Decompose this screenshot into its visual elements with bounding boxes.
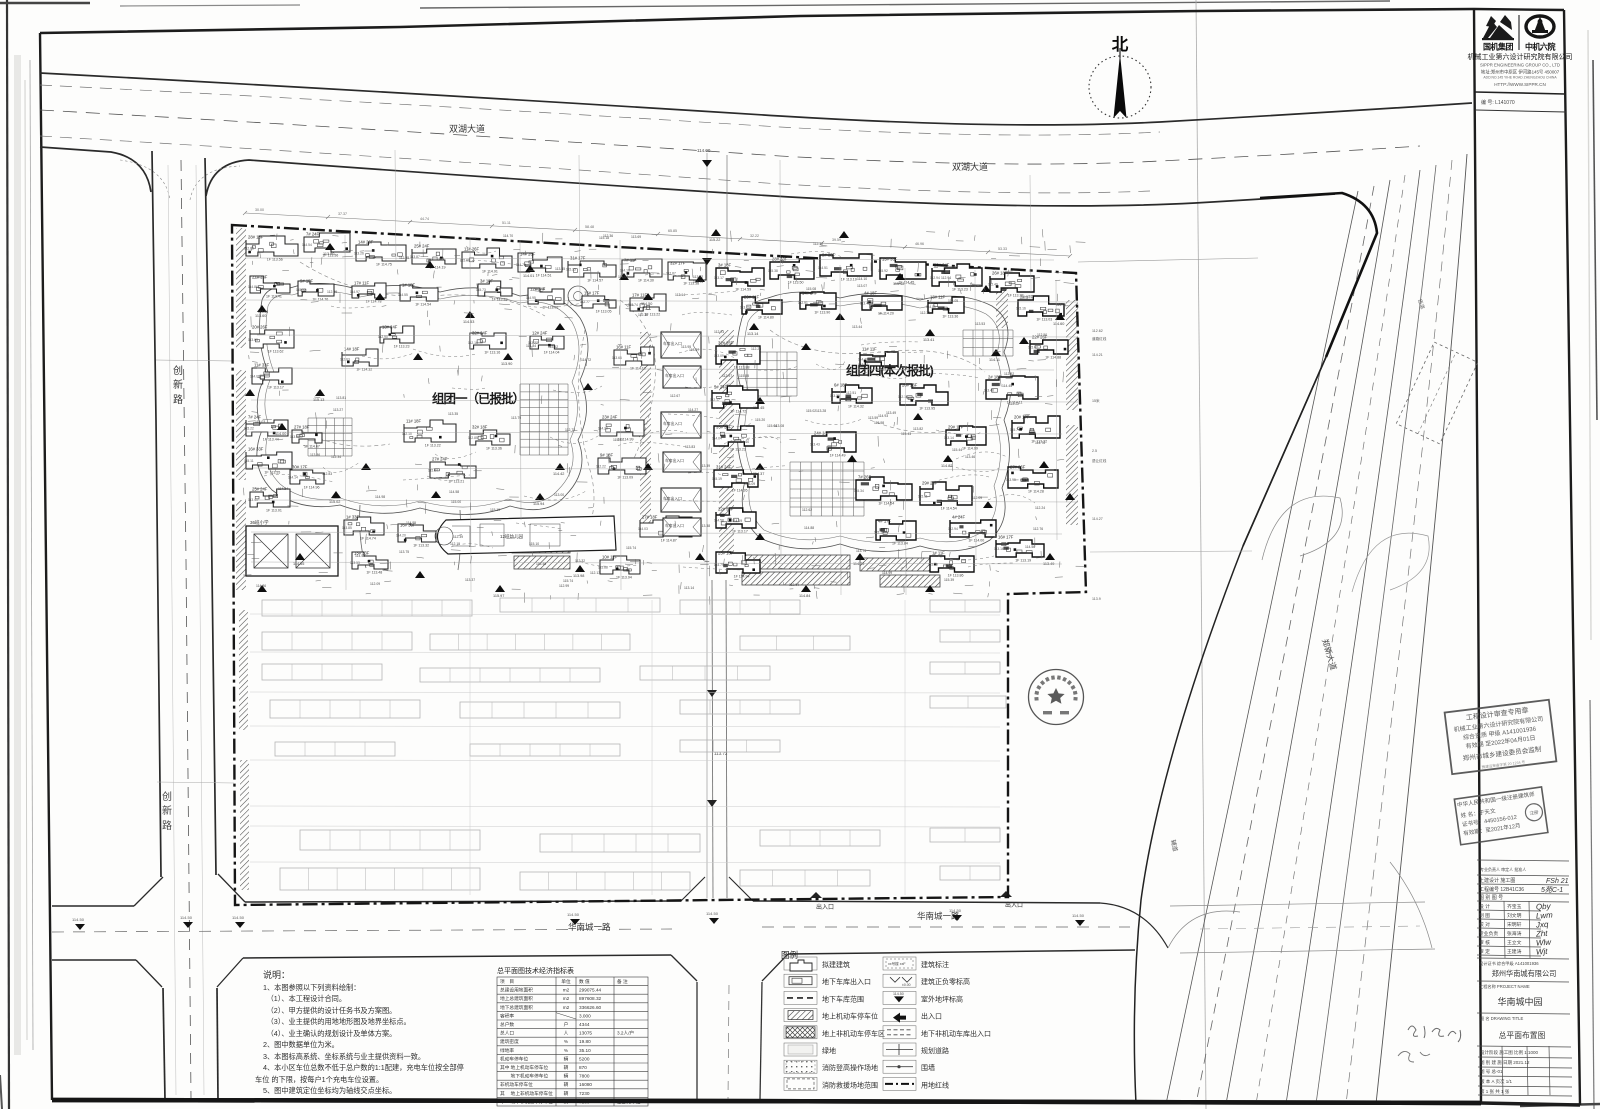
svg-text:114.84: 114.84: [526, 344, 536, 348]
svg-text:112.22: 112.22: [1009, 402, 1019, 406]
svg-text:114.19: 114.19: [732, 519, 742, 523]
svg-text:1F 113.50: 1F 113.50: [788, 281, 804, 285]
svg-text:113.14: 113.14: [684, 586, 694, 590]
svg-text:115.73: 115.73: [476, 288, 486, 292]
svg-text:其中 地上机动车停车位: 其中 地上机动车停车位: [500, 1064, 548, 1071]
svg-text:33# 33F: 33# 33F: [716, 425, 732, 430]
svg-text:制 图: 制 图: [1479, 912, 1490, 919]
svg-text:1F 114.26: 1F 114.26: [732, 489, 748, 493]
svg-text:1F 113.88: 1F 113.88: [734, 366, 750, 370]
svg-text:113.41: 113.41: [860, 301, 870, 305]
svg-text:图例: 图例: [781, 950, 798, 960]
svg-text:113.53: 113.53: [975, 322, 985, 326]
svg-text:112.86: 112.86: [327, 290, 337, 294]
svg-text:辆: 辆: [564, 1090, 569, 1097]
svg-text:112.39: 112.39: [453, 535, 463, 539]
svg-text:其 地上非机动车停车位: 其 地上非机动车停车位: [500, 1090, 553, 1097]
svg-text:备 注: 备 注: [617, 978, 628, 985]
svg-text:113.23: 113.23: [830, 394, 840, 398]
svg-text:辆: 辆: [564, 1055, 569, 1062]
svg-text:9# 18F: 9# 18F: [300, 279, 313, 284]
svg-text:1# 11F: 1# 11F: [932, 551, 945, 556]
svg-text:消防救援场地范围: 消防救援场地范围: [822, 1080, 878, 1089]
svg-text:齐宝玉: 齐宝玉: [1507, 903, 1522, 910]
svg-text:113.83: 113.83: [685, 445, 695, 449]
svg-text:112.94: 112.94: [930, 276, 940, 280]
svg-text:114.86: 114.86: [256, 584, 266, 588]
svg-text:1F 114.12: 1F 114.12: [630, 367, 646, 371]
svg-text:114.54: 114.54: [302, 243, 312, 247]
svg-text:1F 113.03: 1F 113.03: [1036, 318, 1052, 322]
svg-text:114.50: 114.50: [641, 302, 652, 306]
svg-text:897608.32: 897608.32: [579, 996, 602, 1001]
svg-text:113.82: 113.82: [913, 427, 923, 431]
svg-text:xx号楼 xxF: xx号楼 xxF: [888, 961, 906, 966]
svg-text:112.62: 112.62: [1092, 329, 1103, 333]
svg-text:51.11: 51.11: [502, 221, 511, 225]
svg-text:113.37: 113.37: [465, 578, 475, 582]
svg-text:114.99: 114.99: [882, 571, 892, 575]
svg-text:26# 26F: 26# 26F: [902, 383, 918, 388]
svg-text:3、本图标高系统、坐标系统与业主提供资料一致。: 3、本图标高系统、坐标系统与业主提供资料一致。: [263, 1052, 425, 1061]
svg-text:112.19: 112.19: [450, 542, 460, 546]
svg-text:围墙: 围墙: [921, 1063, 935, 1072]
svg-text:机械工业第六设计研究院有限公司: 机械工业第六设计研究院有限公司: [1468, 52, 1573, 61]
svg-text:113.07: 113.07: [857, 284, 867, 288]
svg-text:1# 18F: 1# 18F: [402, 283, 415, 288]
svg-text:114.60: 114.60: [1053, 322, 1064, 326]
svg-text:地上总建筑面积: 地上总建筑面积: [500, 995, 533, 1002]
svg-text:13# 24F: 13# 24F: [382, 325, 398, 330]
svg-text:114.50: 114.50: [1072, 913, 1085, 918]
svg-text:113.28: 113.28: [816, 409, 826, 413]
svg-text:115.02: 115.02: [329, 500, 340, 504]
svg-text:设计证书 综合甲级 A141001936: 设计证书 综合甲级 A141001936: [1479, 960, 1539, 967]
svg-text:112.49: 112.49: [988, 283, 998, 287]
svg-text:新: 新: [173, 378, 183, 391]
svg-text:114.58: 114.58: [714, 519, 724, 523]
svg-text:11# 26F: 11# 26F: [464, 247, 479, 252]
svg-text:114.37: 114.37: [753, 472, 764, 476]
svg-text:37.37: 37.37: [338, 212, 347, 216]
svg-text:1F 114.00: 1F 114.00: [968, 539, 984, 543]
svg-text:1F 114.74: 1F 114.74: [360, 537, 376, 541]
svg-text:113.16: 113.16: [994, 547, 1004, 551]
svg-text:114.55: 114.55: [398, 293, 408, 297]
svg-text:113.46: 113.46: [965, 455, 975, 459]
svg-text:19.80: 19.80: [579, 1039, 591, 1044]
svg-text:114.03: 114.03: [638, 527, 648, 531]
svg-text:1F 113.23: 1F 113.23: [394, 345, 410, 349]
svg-text:113.98: 113.98: [573, 574, 584, 578]
svg-text:16# 11F: 16# 11F: [616, 345, 631, 350]
svg-text:20# 24F: 20# 24F: [934, 263, 950, 268]
svg-text:29# 11F: 29# 11F: [744, 295, 759, 300]
svg-text:114.10: 114.10: [857, 277, 867, 281]
svg-text:专业负责人 审定人 批准人: 专业负责人 审定人 批准人: [1480, 866, 1526, 872]
svg-text:115.74: 115.74: [626, 546, 636, 550]
svg-text:112.24: 112.24: [1035, 506, 1045, 510]
svg-text:1# 33F: 1# 33F: [346, 515, 359, 520]
svg-text:车位 的下限，按每户1个充电车位设置。: 车位 的下限，按每户1个充电车位设置。: [255, 1075, 383, 1084]
svg-text:114.51: 114.51: [818, 266, 828, 270]
svg-text:113.44: 113.44: [852, 325, 862, 329]
svg-text:114.95: 114.95: [406, 521, 416, 525]
svg-text:15米: 15米: [1092, 398, 1100, 403]
svg-text:114.15: 114.15: [535, 287, 545, 291]
svg-text:3.000: 3.000: [579, 1013, 591, 1018]
svg-text:建筑标注: 建筑标注: [921, 960, 949, 969]
svg-text:113.68: 113.68: [258, 310, 268, 314]
svg-text:宋明轩: 宋明轩: [1507, 921, 1522, 928]
svg-text:114.50: 114.50: [949, 908, 962, 913]
svg-text:115.43: 115.43: [901, 432, 911, 436]
svg-text:编 号: L141070: 编 号: L141070: [1481, 99, 1515, 106]
svg-text:115.19: 115.19: [712, 477, 722, 481]
svg-text:1F 113.19: 1F 113.19: [1015, 559, 1031, 563]
svg-text:113.39: 113.39: [700, 464, 710, 468]
svg-text:辆: 辆: [564, 1064, 569, 1071]
svg-text:115.16: 115.16: [1016, 307, 1026, 311]
svg-text:27# 18F: 27# 18F: [294, 425, 310, 430]
svg-text:1F 114.72: 1F 114.72: [730, 410, 746, 414]
svg-text:设 计: 设 计: [1479, 903, 1490, 910]
svg-text:114.27: 114.27: [1092, 517, 1103, 521]
svg-text:规划道路: 规划道路: [921, 1046, 949, 1055]
svg-text:土建设计 施工图: 土建设计 施工图: [1479, 877, 1515, 884]
svg-text:113.29: 113.29: [740, 305, 750, 309]
svg-text:地下非机动车库出入口: 地下非机动车库出入口: [921, 1029, 991, 1038]
svg-text:115.22: 115.22: [709, 238, 720, 242]
svg-text:113.63: 113.63: [248, 338, 258, 342]
svg-text:112.73: 112.73: [565, 428, 575, 432]
svg-text:16# 33F: 16# 33F: [248, 447, 264, 452]
svg-text:112.73: 112.73: [714, 330, 724, 334]
svg-text:27# 24F: 27# 24F: [432, 457, 448, 462]
svg-text:114.20: 114.20: [598, 427, 608, 431]
svg-text:114.04: 114.04: [712, 437, 722, 441]
svg-text:113.87: 113.87: [689, 348, 699, 352]
svg-text:113.81: 113.81: [336, 396, 346, 400]
svg-text:1F 113.23: 1F 113.23: [730, 448, 746, 452]
svg-text:图 号 总-01: 图 号 总-01: [1480, 1068, 1503, 1075]
svg-text:地下机动车停车位: 地下机动车停车位: [500, 1073, 548, 1080]
svg-text:27# 18F: 27# 18F: [642, 515, 658, 520]
svg-text:31# 17F: 31# 17F: [570, 256, 586, 261]
svg-text:114.06: 114.06: [250, 375, 260, 379]
svg-text:1F 113.09: 1F 113.09: [617, 476, 633, 480]
svg-text:115.55: 115.55: [739, 374, 749, 378]
svg-text:16080: 16080: [579, 1082, 592, 1087]
svg-text:1F 113.05: 1F 113.05: [542, 306, 558, 310]
svg-text:113.35: 113.35: [448, 412, 458, 416]
svg-text:115.94: 115.94: [533, 502, 544, 506]
svg-text:北: 北: [1112, 35, 1129, 54]
svg-text:115.84: 115.84: [428, 469, 438, 473]
svg-text:39.59: 39.59: [832, 238, 841, 242]
svg-text:32.22: 32.22: [750, 234, 759, 238]
svg-text:1F 113.16: 1F 113.16: [484, 351, 500, 355]
svg-text:6# 18F: 6# 18F: [834, 383, 847, 388]
svg-text:1F 114.20: 1F 114.20: [878, 312, 894, 316]
svg-text:115.00: 115.00: [451, 500, 461, 504]
svg-text:113.43: 113.43: [810, 443, 820, 447]
svg-text:1F 113.21: 1F 113.21: [448, 480, 464, 484]
svg-text:1F 114.76: 1F 114.76: [312, 298, 328, 302]
svg-text:1F 113.36: 1F 113.36: [486, 447, 502, 451]
svg-text:国机集团: 国机集团: [1483, 42, 1513, 52]
svg-text:12# 24F: 12# 24F: [532, 331, 548, 336]
svg-text:1F 114.54: 1F 114.54: [415, 303, 431, 307]
svg-text:112.25: 112.25: [751, 347, 761, 351]
svg-text:注册: 注册: [1529, 809, 1539, 817]
svg-text:5200: 5200: [579, 1056, 590, 1061]
svg-text:7# 26F: 7# 26F: [858, 475, 871, 480]
svg-text:24# 18F: 24# 18F: [814, 431, 830, 436]
svg-text:1F 113.94: 1F 113.94: [616, 576, 632, 580]
svg-text:1F 114.54: 1F 114.54: [878, 502, 894, 506]
svg-text:（2）、甲方提供的设计任务书及方案图。: （2）、甲方提供的设计任务书及方案图。: [263, 1006, 396, 1015]
svg-text:室外地坪标高: 室外地坪标高: [921, 994, 963, 1003]
svg-text:7800: 7800: [579, 1074, 590, 1079]
svg-text:建筑密度: 建筑密度: [500, 1038, 519, 1045]
svg-text:绿地率: 绿地率: [500, 1047, 514, 1054]
svg-text:21# 18F: 21# 18F: [252, 275, 268, 280]
svg-text:3# 18F: 3# 18F: [480, 279, 493, 284]
svg-text:5# 24F: 5# 24F: [714, 385, 727, 390]
svg-text:ADD:NO.145 YIHE ROAD ZHENGZHOU: ADD:NO.145 YIHE ROAD ZHENGZHOU CHINA: [1483, 76, 1557, 80]
svg-text:项 目: 项 目: [500, 979, 514, 985]
svg-text:张海涛: 张海涛: [1507, 930, 1522, 937]
svg-text:115.11: 115.11: [244, 459, 254, 463]
svg-text:28# 18F: 28# 18F: [248, 235, 264, 240]
svg-text:114.76: 114.76: [516, 263, 526, 267]
svg-text:14# 24F: 14# 24F: [802, 291, 818, 296]
svg-text:1F 114.80: 1F 114.80: [758, 316, 774, 320]
svg-text:23# 24F: 23# 24F: [602, 415, 618, 420]
svg-text:7230: 7230: [579, 1091, 590, 1096]
svg-text:1F 114.59: 1F 114.59: [735, 288, 751, 292]
svg-text:114.94: 114.94: [1056, 303, 1066, 307]
svg-text:12班幼儿园: 12班幼儿园: [500, 533, 524, 540]
svg-text:1F 114.75: 1F 114.75: [376, 263, 392, 267]
svg-text:18# 11F: 18# 11F: [930, 295, 945, 300]
svg-text:16# 17F: 16# 17F: [998, 535, 1014, 540]
svg-text:31# 24F: 31# 24F: [716, 465, 732, 470]
svg-text:112.94: 112.94: [948, 527, 958, 531]
svg-text:户: 户: [564, 1021, 569, 1028]
svg-text:（4）、业主确认的规划设计及单体方案。: （4）、业主确认的规划设计及单体方案。: [263, 1029, 396, 1038]
svg-text:30# 17F: 30# 17F: [292, 465, 308, 470]
svg-text:1F 113.95: 1F 113.95: [919, 407, 935, 411]
svg-text:113.53: 113.53: [350, 561, 360, 565]
svg-text:114.56: 114.56: [1025, 545, 1035, 549]
svg-text:辅道: 辅道: [1169, 839, 1179, 852]
svg-text:辆: 辆: [564, 1073, 569, 1080]
svg-text:1F 114.88: 1F 114.88: [1045, 356, 1061, 360]
svg-text:114.16: 114.16: [620, 268, 630, 272]
svg-text:1F 113.55: 1F 113.55: [264, 471, 280, 475]
svg-text:115.11: 115.11: [918, 494, 928, 498]
svg-text:115.08: 115.08: [806, 287, 816, 291]
svg-text:1F 113.01: 1F 113.01: [266, 509, 282, 513]
svg-text:华南城中园: 华南城中园: [1497, 996, 1542, 1007]
svg-text:车库出入口: 车库出入口: [663, 341, 682, 346]
svg-text:113.59: 113.59: [868, 416, 878, 420]
svg-text:299075.44: 299075.44: [579, 988, 602, 993]
svg-text:114.55: 114.55: [293, 562, 304, 566]
svg-text:112.94: 112.94: [789, 583, 799, 587]
svg-text:设计阶段 施工图 比例 1:1000: 设计阶段 施工图 比例 1:1000: [1480, 1049, 1539, 1056]
svg-text:112.92: 112.92: [1004, 372, 1014, 376]
svg-text:1F 114.54: 1F 114.54: [941, 507, 957, 511]
svg-text:用地红线: 用地红线: [921, 1080, 949, 1089]
svg-text:王立文: 王立文: [1507, 939, 1522, 946]
svg-text:115.18: 115.18: [599, 236, 609, 240]
svg-text:115.02: 115.02: [806, 409, 816, 413]
svg-text:114.21: 114.21: [1092, 353, 1103, 357]
svg-text:114.72: 114.72: [581, 358, 591, 362]
svg-text:2# 18F: 2# 18F: [988, 375, 1001, 380]
svg-text:1F 113.84: 1F 113.84: [892, 542, 908, 546]
svg-text:1F 113.17: 1F 113.17: [268, 386, 284, 390]
svg-text:车库出入口: 车库出入口: [665, 373, 684, 378]
svg-text:115.92: 115.92: [613, 438, 623, 442]
svg-text:中机六院: 中机六院: [1525, 42, 1555, 52]
svg-text:28# 33F: 28# 33F: [772, 257, 788, 262]
svg-text:1F 114.32: 1F 114.32: [848, 405, 864, 409]
svg-text:总平面图技术经济指标表: 总平面图技术经济指标表: [497, 966, 574, 975]
svg-text:32# 18F: 32# 18F: [472, 425, 488, 430]
svg-text:114.60: 114.60: [739, 440, 749, 444]
svg-text:郑州华南城有限公司: 郑州华南城有限公司: [1492, 969, 1557, 978]
svg-text:HTTP://WWW.SIPPR.CN: HTTP://WWW.SIPPR.CN: [1494, 82, 1546, 87]
svg-text:王建涛: 王建涛: [1507, 948, 1522, 955]
svg-text:112.99: 112.99: [559, 584, 569, 588]
svg-text:115.02: 115.02: [1028, 345, 1038, 349]
svg-text:拟建建筑: 拟建建筑: [822, 960, 850, 969]
svg-text:4# 18F: 4# 18F: [864, 291, 877, 296]
svg-text:114.76: 114.76: [1035, 441, 1045, 445]
svg-text:车库出入口: 车库出入口: [665, 458, 684, 463]
svg-text:115.79: 115.79: [693, 280, 703, 284]
svg-text:114.97: 114.97: [350, 290, 360, 294]
svg-text:113.27: 113.27: [333, 408, 343, 412]
svg-text:112.22: 112.22: [596, 465, 606, 469]
svg-text:创: 创: [162, 790, 172, 803]
svg-text:辆: 辆: [564, 1081, 569, 1088]
svg-text:1F 114.57: 1F 114.57: [587, 279, 603, 283]
svg-text:113.60: 113.60: [255, 314, 266, 318]
svg-text:112.32: 112.32: [920, 311, 930, 315]
svg-text:14# 26F: 14# 26F: [358, 240, 374, 245]
svg-text:非机动车停车位: 非机动车停车位: [500, 1081, 533, 1088]
svg-text:113.41: 113.41: [248, 498, 258, 502]
svg-text:115.45: 115.45: [753, 406, 764, 410]
svg-text:115.39: 115.39: [944, 578, 954, 582]
svg-text:图 名 DRAWING TITLE: 图 名 DRAWING TITLE: [1480, 1015, 1523, 1022]
svg-text:115.23: 115.23: [566, 268, 576, 272]
svg-text:4344: 4344: [579, 1022, 590, 1027]
svg-text:车库出入口: 车库出入口: [665, 523, 684, 528]
svg-text:113.90: 113.90: [501, 362, 512, 366]
svg-text:23# 18F: 23# 18F: [718, 551, 734, 556]
svg-text:郑新大道: 郑新大道: [1320, 638, 1339, 672]
svg-text:退让红线: 退让红线: [1092, 458, 1107, 463]
svg-text:1F 114.04: 1F 114.04: [544, 351, 560, 355]
svg-text:112.34: 112.34: [331, 455, 341, 459]
svg-text:112.76: 112.76: [1033, 527, 1043, 531]
svg-text:数 值: 数 值: [579, 978, 590, 985]
svg-text:113.74: 113.74: [856, 549, 866, 553]
svg-text:46.96: 46.96: [915, 242, 924, 246]
svg-text:4# 17F: 4# 17F: [878, 519, 891, 524]
svg-text:336626.60: 336626.60: [579, 1005, 602, 1010]
svg-text:114.27: 114.27: [688, 408, 698, 412]
svg-text:15# 17F: 15# 17F: [584, 291, 600, 296]
svg-text:2# 17F: 2# 17F: [1020, 295, 1033, 300]
svg-text:115.10: 115.10: [529, 542, 539, 546]
svg-text:113.26: 113.26: [354, 252, 364, 256]
svg-text:113.90: 113.90: [323, 252, 334, 256]
svg-text:9# 18F: 9# 18F: [600, 453, 613, 458]
svg-text:114.88: 114.88: [804, 526, 814, 530]
svg-text:20# 17F: 20# 17F: [1014, 415, 1030, 420]
svg-text:32# 26F: 32# 26F: [718, 341, 734, 346]
svg-text:11# 18F: 11# 18F: [406, 419, 421, 424]
svg-text:匝道: 匝道: [1416, 298, 1426, 310]
svg-text:1F 113.36: 1F 113.36: [942, 315, 958, 319]
svg-text:112.15: 112.15: [898, 395, 908, 399]
svg-text:870: 870: [579, 1065, 587, 1070]
svg-text:65.85: 65.85: [668, 229, 677, 233]
svg-text:m2: m2: [563, 996, 570, 1001]
svg-text:113.08: 113.08: [774, 424, 784, 428]
svg-text:4、本小区车位总数不低于总户数的1:1配建，充电车位按全部停: 4、本小区车位总数不低于总户数的1:1配建，充电车位按全部停: [263, 1063, 464, 1072]
svg-text:115.20: 115.20: [755, 418, 765, 422]
svg-text:1F 113.48: 1F 113.48: [366, 571, 382, 575]
svg-text:115.03: 115.03: [255, 420, 265, 424]
svg-text:114.14: 114.14: [288, 475, 298, 479]
svg-text:114.00: 114.00: [275, 432, 286, 436]
svg-text:115.19: 115.19: [490, 508, 500, 512]
svg-text:图 别 建 施 日期 2021.12: 图 别 建 施 日期 2021.12: [1480, 1059, 1530, 1066]
svg-text:道路红线: 道路红线: [1092, 336, 1107, 341]
svg-text:112.67: 112.67: [670, 394, 680, 398]
svg-text:58.48: 58.48: [585, 225, 594, 229]
svg-text:1F 114.49: 1F 114.49: [830, 454, 846, 458]
svg-text:出入口: 出入口: [1005, 901, 1023, 909]
svg-text:115.74: 115.74: [1010, 428, 1020, 432]
svg-text:消防登高操作场地: 消防登高操作场地: [822, 1063, 878, 1072]
svg-text:7# 11F: 7# 11F: [624, 258, 637, 263]
svg-text:1F 113.23: 1F 113.23: [952, 288, 968, 292]
svg-text:36班小学: 36班小学: [250, 519, 269, 526]
svg-text:112.09: 112.09: [370, 582, 380, 586]
svg-text:112.63: 112.63: [340, 357, 350, 361]
svg-text:1F 113.22: 1F 113.22: [425, 444, 441, 448]
svg-text:1F 114.96: 1F 114.96: [304, 486, 320, 490]
svg-text:112.55: 112.55: [399, 256, 409, 260]
svg-text:1F 114.91: 1F 114.91: [482, 270, 498, 274]
svg-text:114.24: 114.24: [278, 487, 288, 491]
svg-text:113.09: 113.09: [745, 482, 755, 486]
svg-text:审 定: 审 定: [1479, 948, 1490, 955]
svg-text:1F 114.51: 1F 114.51: [536, 274, 552, 278]
svg-text:113.86: 113.86: [310, 453, 320, 457]
svg-text:115.92: 115.92: [878, 269, 888, 273]
svg-text:113.14: 113.14: [747, 332, 758, 336]
